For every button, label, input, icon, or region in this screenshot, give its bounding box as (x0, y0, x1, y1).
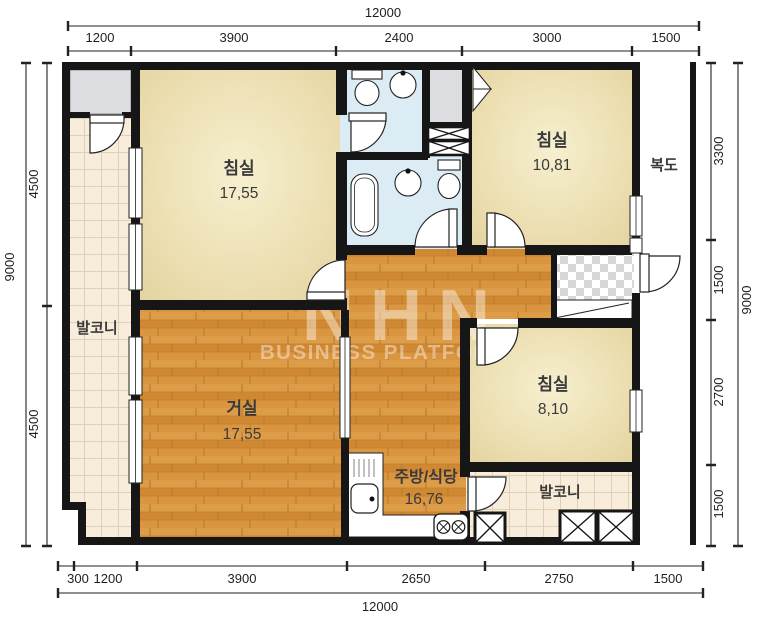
watermark-text: BUSINESS PLATFORM (260, 341, 508, 364)
ac-unit-box-1 (560, 511, 596, 543)
bedroom-right-label: 침실 (537, 374, 568, 394)
dim-left-seg-1: 4500 (26, 410, 41, 439)
corridor-outer-wall (690, 62, 696, 545)
dim-right-seg-3: 1500 (711, 490, 726, 519)
kitchen-dining-label: 주방/식당 (394, 468, 458, 486)
dim-left-total: 9000 (2, 253, 17, 282)
dim-bottom-seg-2: 3900 (228, 571, 257, 586)
dim-bottom-seg-5: 1500 (654, 571, 683, 586)
bedroom-top-right-area: 10,81 (533, 157, 572, 174)
dim-right-seg-2: 2700 (711, 378, 726, 407)
window-balcony-living-1 (129, 337, 142, 395)
opening-living-hall (340, 337, 350, 438)
dim-left-seg-0: 4500 (26, 170, 41, 199)
window-balcony-bedroom-2 (129, 224, 142, 290)
toilet-icon (352, 70, 382, 106)
bedroom-top-left-area: 17,55 (220, 185, 259, 202)
dim-bottom-total: 12000 (362, 599, 398, 614)
window-balcony-bedroom-1 (129, 148, 142, 218)
corridor-label: 복도 (650, 157, 678, 174)
dim-right-seg-0: 3300 (711, 137, 726, 166)
toilet-icon-2 (438, 160, 460, 199)
dim-right-seg-1: 1500 (711, 266, 726, 295)
window-bedroom-top-right (630, 196, 642, 236)
dim-top-seg-1: 3900 (220, 30, 249, 45)
room-balcony-left-lower (86, 510, 131, 537)
bedroom-top-right-label: 침실 (536, 130, 567, 150)
bedroom-top-left-label: 침실 (223, 158, 254, 178)
bathtub-icon (351, 174, 378, 236)
ac-unit-box-2 (598, 511, 634, 543)
stove-icon (434, 514, 468, 540)
dim-top: 12000 1200 3900 2400 3000 1500 (68, 5, 699, 56)
outside-notch-mask (62, 510, 78, 537)
dim-bottom-seg-1: 1200 (94, 571, 123, 586)
dim-left: 9000 4500 4500 (2, 63, 52, 546)
dim-top-seg-0: 1200 (86, 30, 115, 45)
room-utility-gray-box (70, 70, 131, 114)
kitchen-dining-area: 16,76 (405, 491, 444, 508)
ac-unit-box-small (475, 513, 505, 543)
dim-top-total: 12000 (365, 5, 401, 20)
balcony-left-label: 발코니 (76, 320, 117, 337)
dim-right: 3300 1500 2700 1500 9000 (706, 63, 754, 546)
room-balcony-left (70, 118, 131, 510)
living-room-label: 거실 (226, 399, 257, 418)
living-room-area: 17,55 (223, 426, 262, 443)
duct-shaft-box-1 (428, 127, 470, 140)
window-bedroom-right (630, 390, 642, 432)
dim-top-seg-4: 1500 (652, 30, 681, 45)
floor-plan-image: NHN BUSINESS PLATFORM (0, 0, 759, 621)
dim-bottom: 300 1200 3900 2650 2750 1500 12000 (58, 561, 703, 614)
entry-foyer-checker (553, 249, 634, 304)
dim-top-seg-3: 3000 (533, 30, 562, 45)
dim-top-seg-2: 2400 (385, 30, 414, 45)
dim-bottom-seg-3: 2650 (402, 571, 431, 586)
bedroom-right-area: 8,10 (538, 401, 569, 418)
window-entry-sidelight (630, 238, 642, 253)
dim-right-total: 9000 (739, 286, 754, 315)
window-balcony-living-2 (129, 400, 142, 483)
shoe-cabinet (553, 300, 632, 320)
balcony-bottom-label: 발코니 (539, 484, 580, 501)
front-door (640, 254, 680, 292)
floor-plan-page: NHN BUSINESS PLATFORM (0, 0, 759, 621)
dim-bottom-seg-4: 2750 (545, 571, 574, 586)
duct-shaft-box-2 (428, 141, 470, 155)
dim-bottom-seg-0: 300 (67, 571, 89, 586)
